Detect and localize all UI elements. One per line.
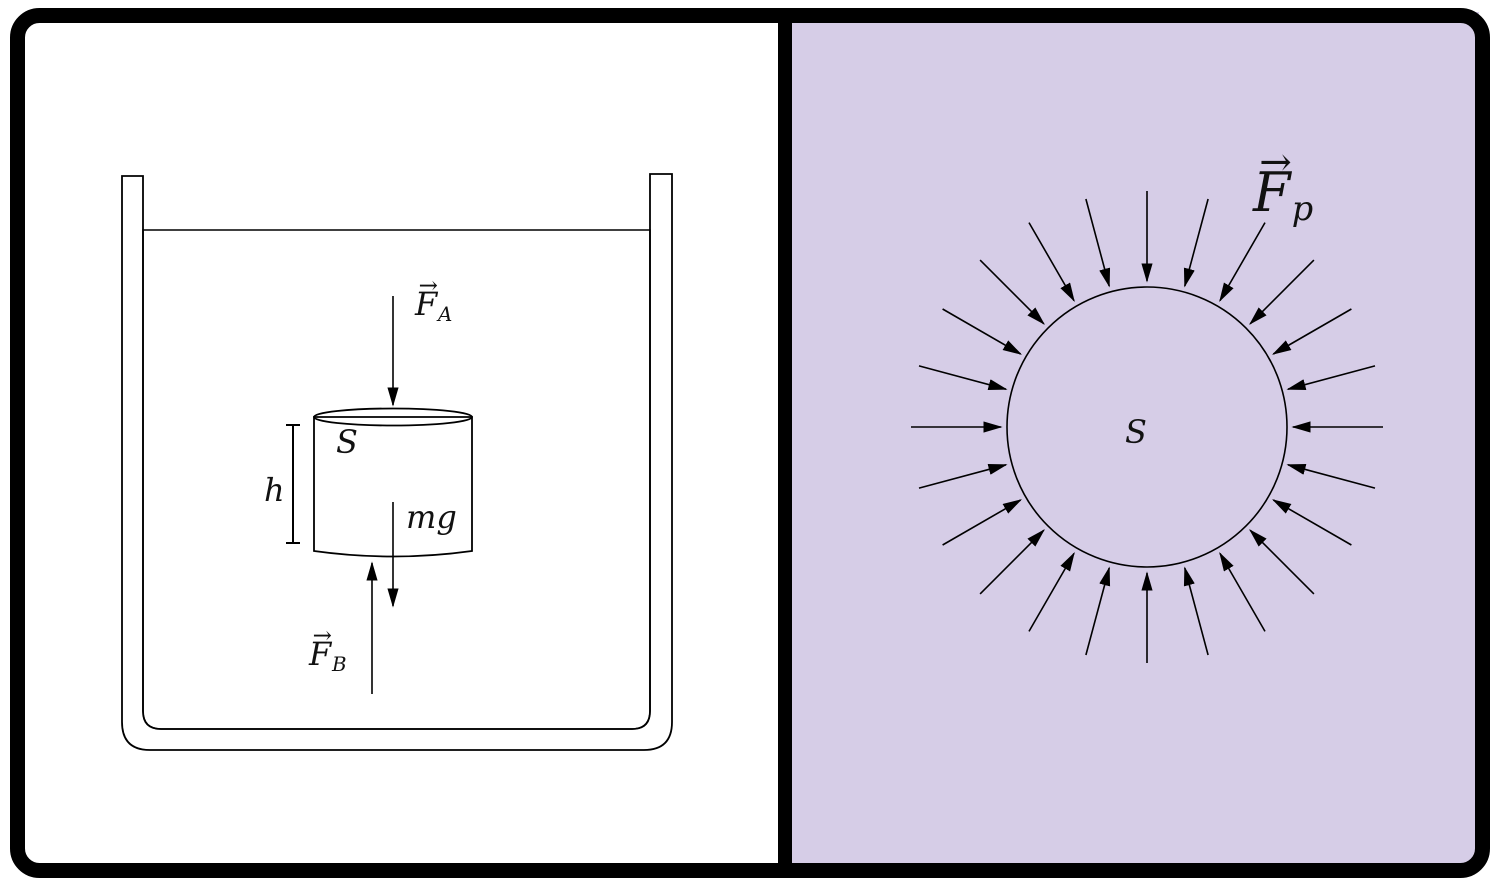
weight-label: mg [406, 501, 457, 533]
vector-arrow-icon: → [1259, 144, 1292, 183]
circle-surface-label: S [1125, 416, 1147, 448]
buoyant-force-label: →FB [309, 638, 347, 674]
pressure-force-label: →Fp [1253, 166, 1313, 226]
vector-f-a: →F [415, 288, 437, 320]
height-label: h [264, 474, 285, 506]
vector-f-p: →F [1253, 166, 1290, 220]
panel-divider [778, 8, 792, 878]
liquid-fill [143, 230, 650, 729]
applied-force-label: →FA [415, 288, 452, 324]
height-bracket [286, 425, 300, 543]
vector-arrow-icon: → [419, 275, 438, 298]
vector-arrow-icon: → [313, 625, 332, 648]
beaker-glass [122, 174, 672, 750]
diagram-svg [0, 0, 1500, 886]
figure-canvas: →FA S h mg →FB S →Fp [0, 0, 1500, 886]
cylinder-surface-label: S [336, 426, 358, 458]
vector-f-b: →F [309, 638, 331, 670]
